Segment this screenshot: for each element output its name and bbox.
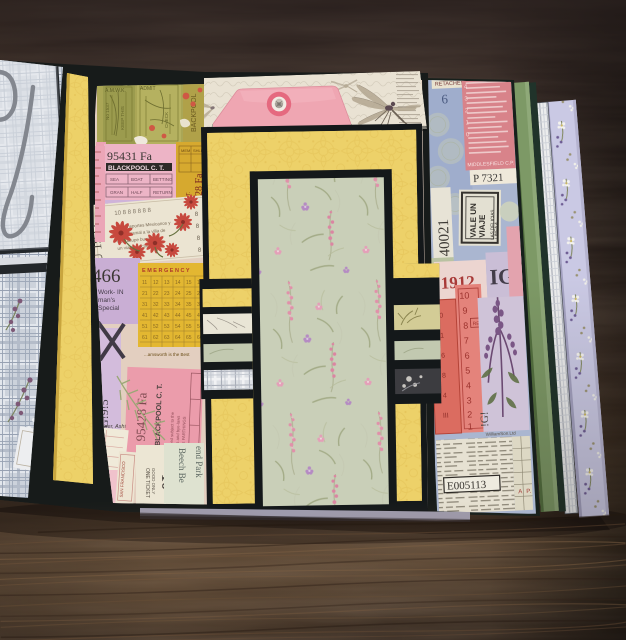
svg-text:6: 6: [441, 353, 445, 360]
svg-text:5: 5: [465, 365, 470, 375]
svg-text:end Park: end Park: [194, 446, 204, 478]
svg-text:VALE UN: VALE UN: [469, 203, 478, 238]
svg-text:53: 53: [164, 324, 170, 330]
svg-text:55: 55: [186, 324, 192, 330]
svg-text:BOAT: BOAT: [131, 177, 143, 182]
svg-text:10: 10: [459, 290, 469, 300]
svg-text:ONE TICKET: ONE TICKET: [144, 468, 150, 498]
svg-text:BACKPOOL: BACKPOOL: [191, 93, 198, 132]
svg-text:22: 22: [153, 291, 159, 297]
svg-text:35: 35: [186, 302, 192, 308]
svg-text:Beech Be: Beech Be: [177, 448, 187, 483]
svg-text:III: III: [443, 412, 449, 419]
svg-text:31: 31: [142, 302, 148, 308]
svg-text:man's: man's: [98, 297, 116, 304]
svg-text:CHECK: CHECK: [164, 111, 169, 128]
svg-text:1: 1: [468, 421, 473, 431]
svg-text:A.M.W.K.: A.M.W.K.: [105, 88, 126, 94]
svg-text:4: 4: [443, 393, 447, 400]
svg-text:63: 63: [164, 335, 170, 341]
svg-text:MEM: MEM: [181, 148, 190, 153]
svg-text:E005113: E005113: [447, 479, 487, 493]
svg-text:!G!: !G!: [479, 411, 492, 427]
svg-text:33: 33: [164, 302, 170, 308]
svg-text:8: 8: [463, 321, 468, 331]
svg-text:6: 6: [441, 91, 449, 106]
svg-text:BLACKPOOL C. T.: BLACKPOOL C. T.: [108, 165, 164, 172]
svg-text:51: 51: [142, 324, 148, 330]
svg-text:62: 62: [153, 335, 159, 341]
svg-text:42: 42: [153, 313, 159, 319]
svg-text:61: 61: [142, 335, 148, 341]
svg-text:HALF: HALF: [131, 190, 143, 195]
svg-text:A: A: [518, 489, 522, 495]
svg-text:LINEA 4: LINEA 4: [494, 222, 499, 239]
svg-text:6: 6: [464, 350, 469, 360]
svg-text:VIAJE: VIAJE: [478, 214, 487, 238]
svg-text:45: 45: [186, 313, 192, 319]
svg-text:11: 11: [142, 280, 147, 286]
svg-text:...amsworth is the Best: ...amsworth is the Best: [144, 352, 190, 357]
svg-text:GRAN: GRAN: [110, 190, 123, 195]
svg-text:15: 15: [186, 280, 192, 286]
svg-text:21: 21: [142, 291, 148, 297]
svg-text:13: 13: [164, 280, 170, 286]
svg-text:ADMIT: ADMIT: [140, 86, 156, 92]
svg-text:E M E R G E N C Y: E M E R G E N C Y: [142, 268, 190, 274]
svg-text:95428 Fa: 95428 Fa: [133, 392, 150, 441]
svg-text:Special: Special: [98, 305, 120, 312]
svg-text:64: 64: [175, 335, 181, 341]
svg-text:1: 1: [440, 333, 444, 340]
svg-text:25: 25: [186, 291, 192, 297]
svg-text:65: 65: [186, 335, 192, 341]
svg-text:2: 2: [467, 409, 472, 419]
svg-text:44: 44: [175, 313, 181, 319]
svg-text:SEA: SEA: [110, 177, 119, 182]
svg-text:8: 8: [442, 373, 446, 380]
svg-text:23: 23: [164, 291, 170, 297]
svg-text:12: 12: [153, 280, 159, 286]
svg-text:14: 14: [175, 280, 181, 286]
svg-text:32: 32: [153, 302, 159, 308]
svg-text:BETTING: BETTING: [153, 177, 173, 182]
svg-text:4: 4: [466, 380, 471, 390]
svg-text:9: 9: [462, 306, 467, 316]
svg-text:P 7321: P 7321: [473, 172, 504, 185]
svg-text:54: 54: [175, 324, 181, 330]
svg-text:34: 34: [175, 302, 181, 308]
svg-text:3: 3: [466, 395, 471, 405]
svg-text:RETURN: RETURN: [153, 190, 172, 195]
svg-text:GOOD ONLY: GOOD ONLY: [151, 468, 156, 494]
svg-text:52: 52: [153, 324, 159, 330]
svg-text:95431 Fa: 95431 Fa: [107, 149, 153, 163]
svg-text:43: 43: [164, 313, 170, 319]
svg-text:24: 24: [175, 291, 181, 297]
svg-text:Work- IN: Work- IN: [98, 289, 124, 296]
svg-text:No 1537: No 1537: [105, 102, 110, 120]
svg-text:P.: P.: [526, 489, 531, 495]
svg-text:40021: 40021: [436, 219, 454, 257]
svg-text:KEEP THIS: KEEP THIS: [120, 106, 125, 130]
svg-text:7: 7: [464, 335, 469, 345]
svg-text:41: 41: [142, 313, 148, 319]
